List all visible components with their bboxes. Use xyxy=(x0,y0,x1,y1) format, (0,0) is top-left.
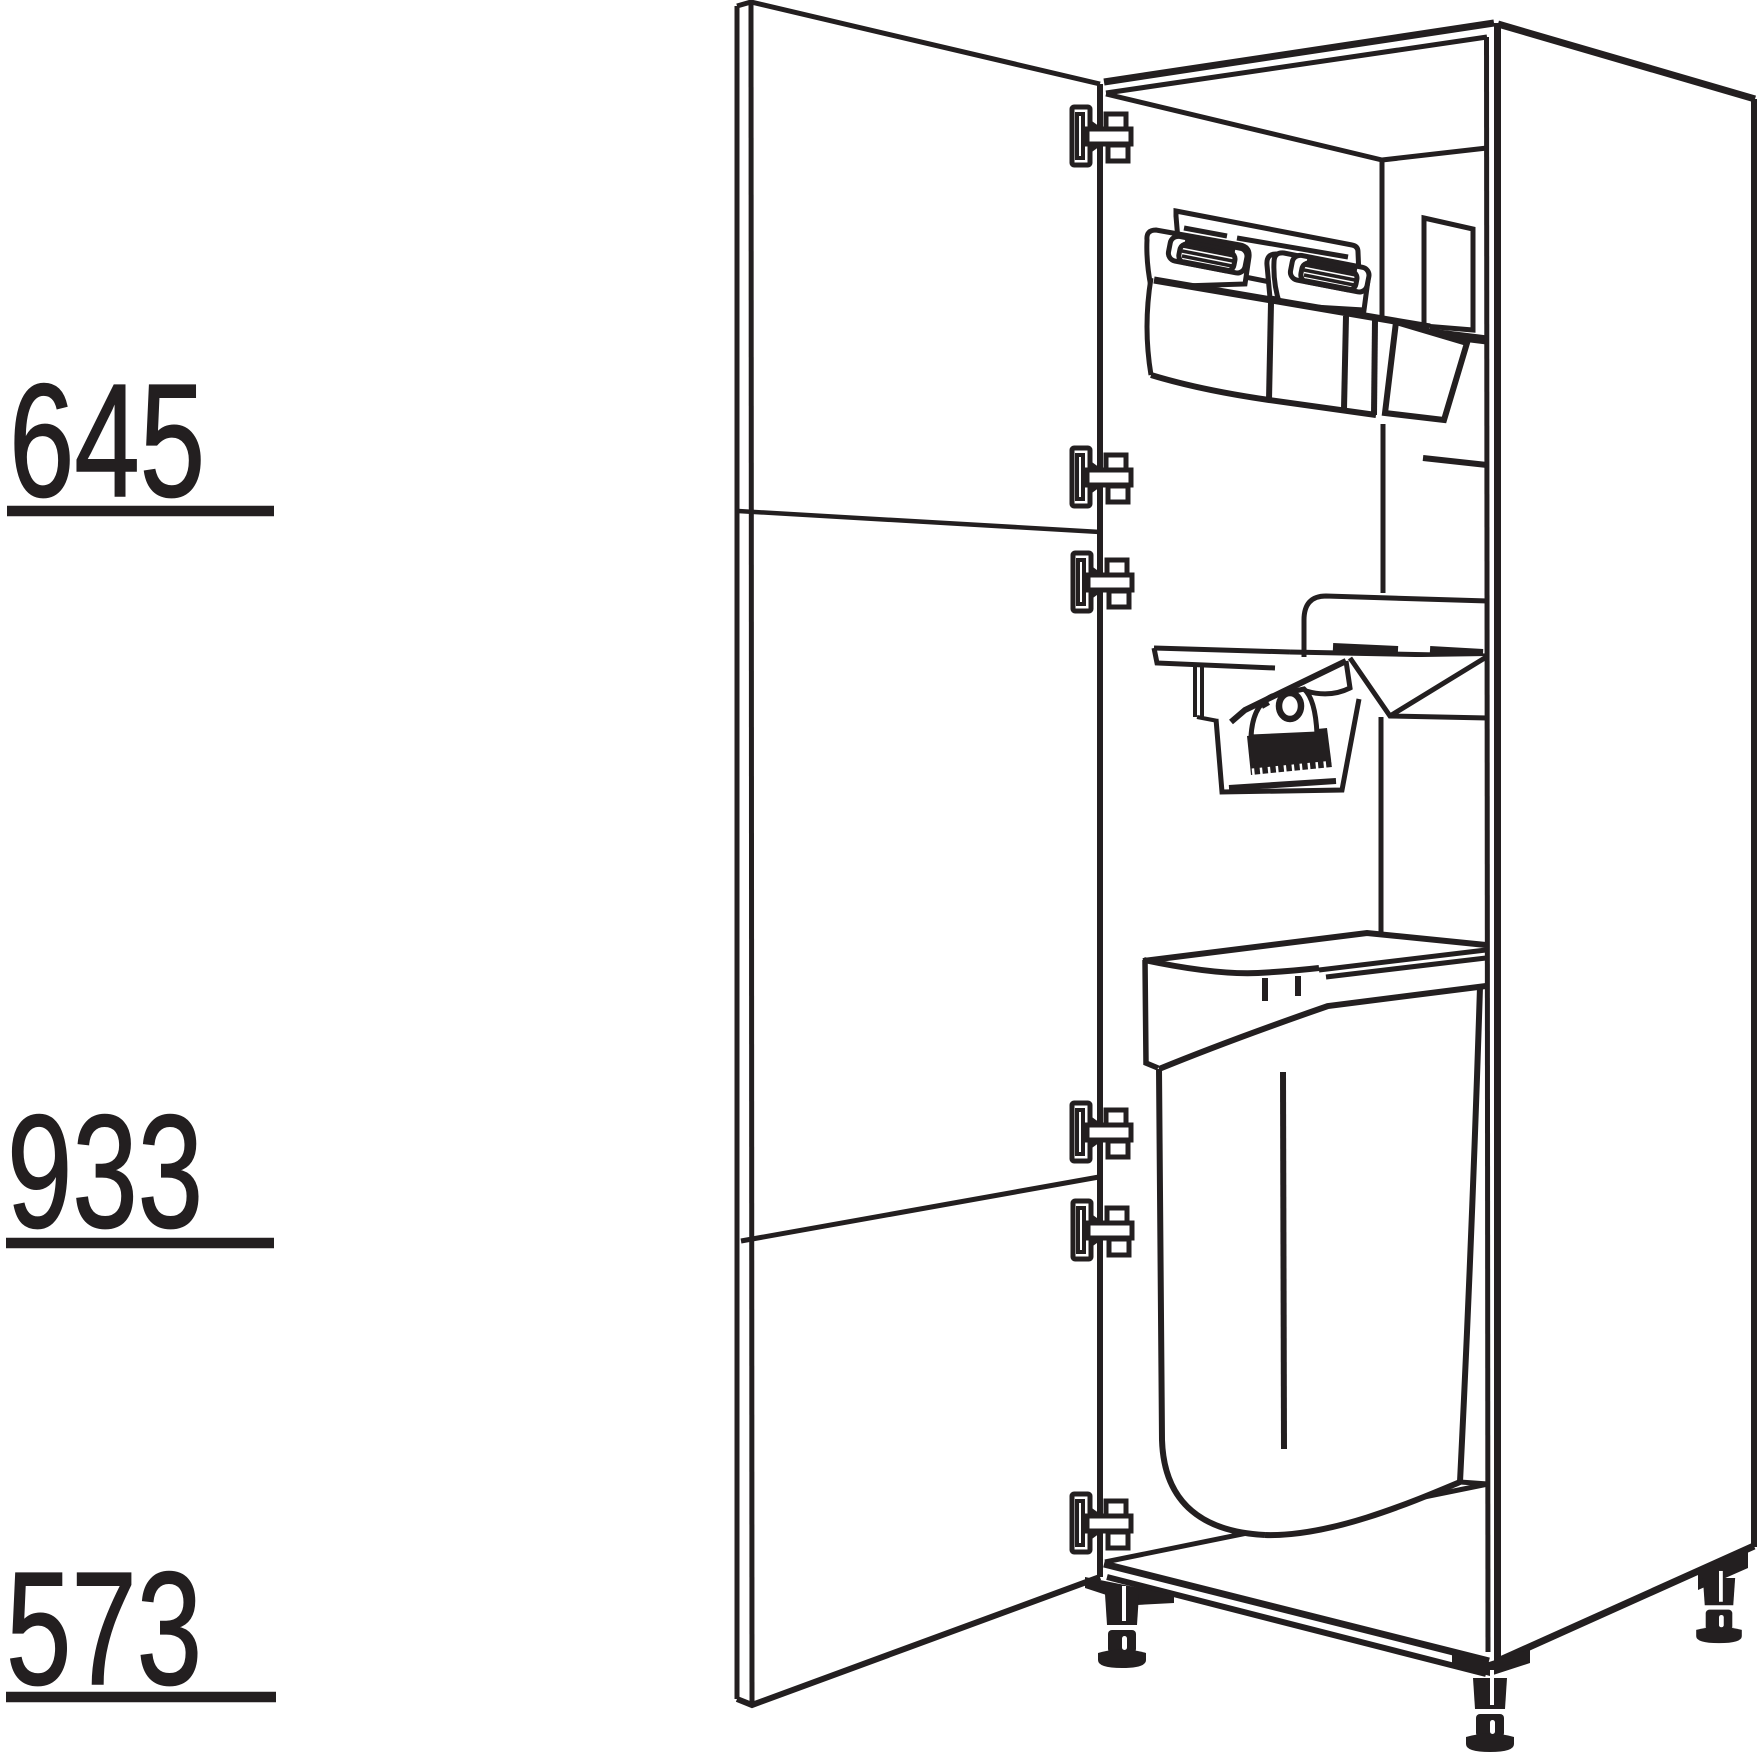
svg-text:573: 573 xyxy=(6,1538,202,1718)
svg-text:645: 645 xyxy=(9,350,205,530)
svg-text:933: 933 xyxy=(7,1081,203,1261)
